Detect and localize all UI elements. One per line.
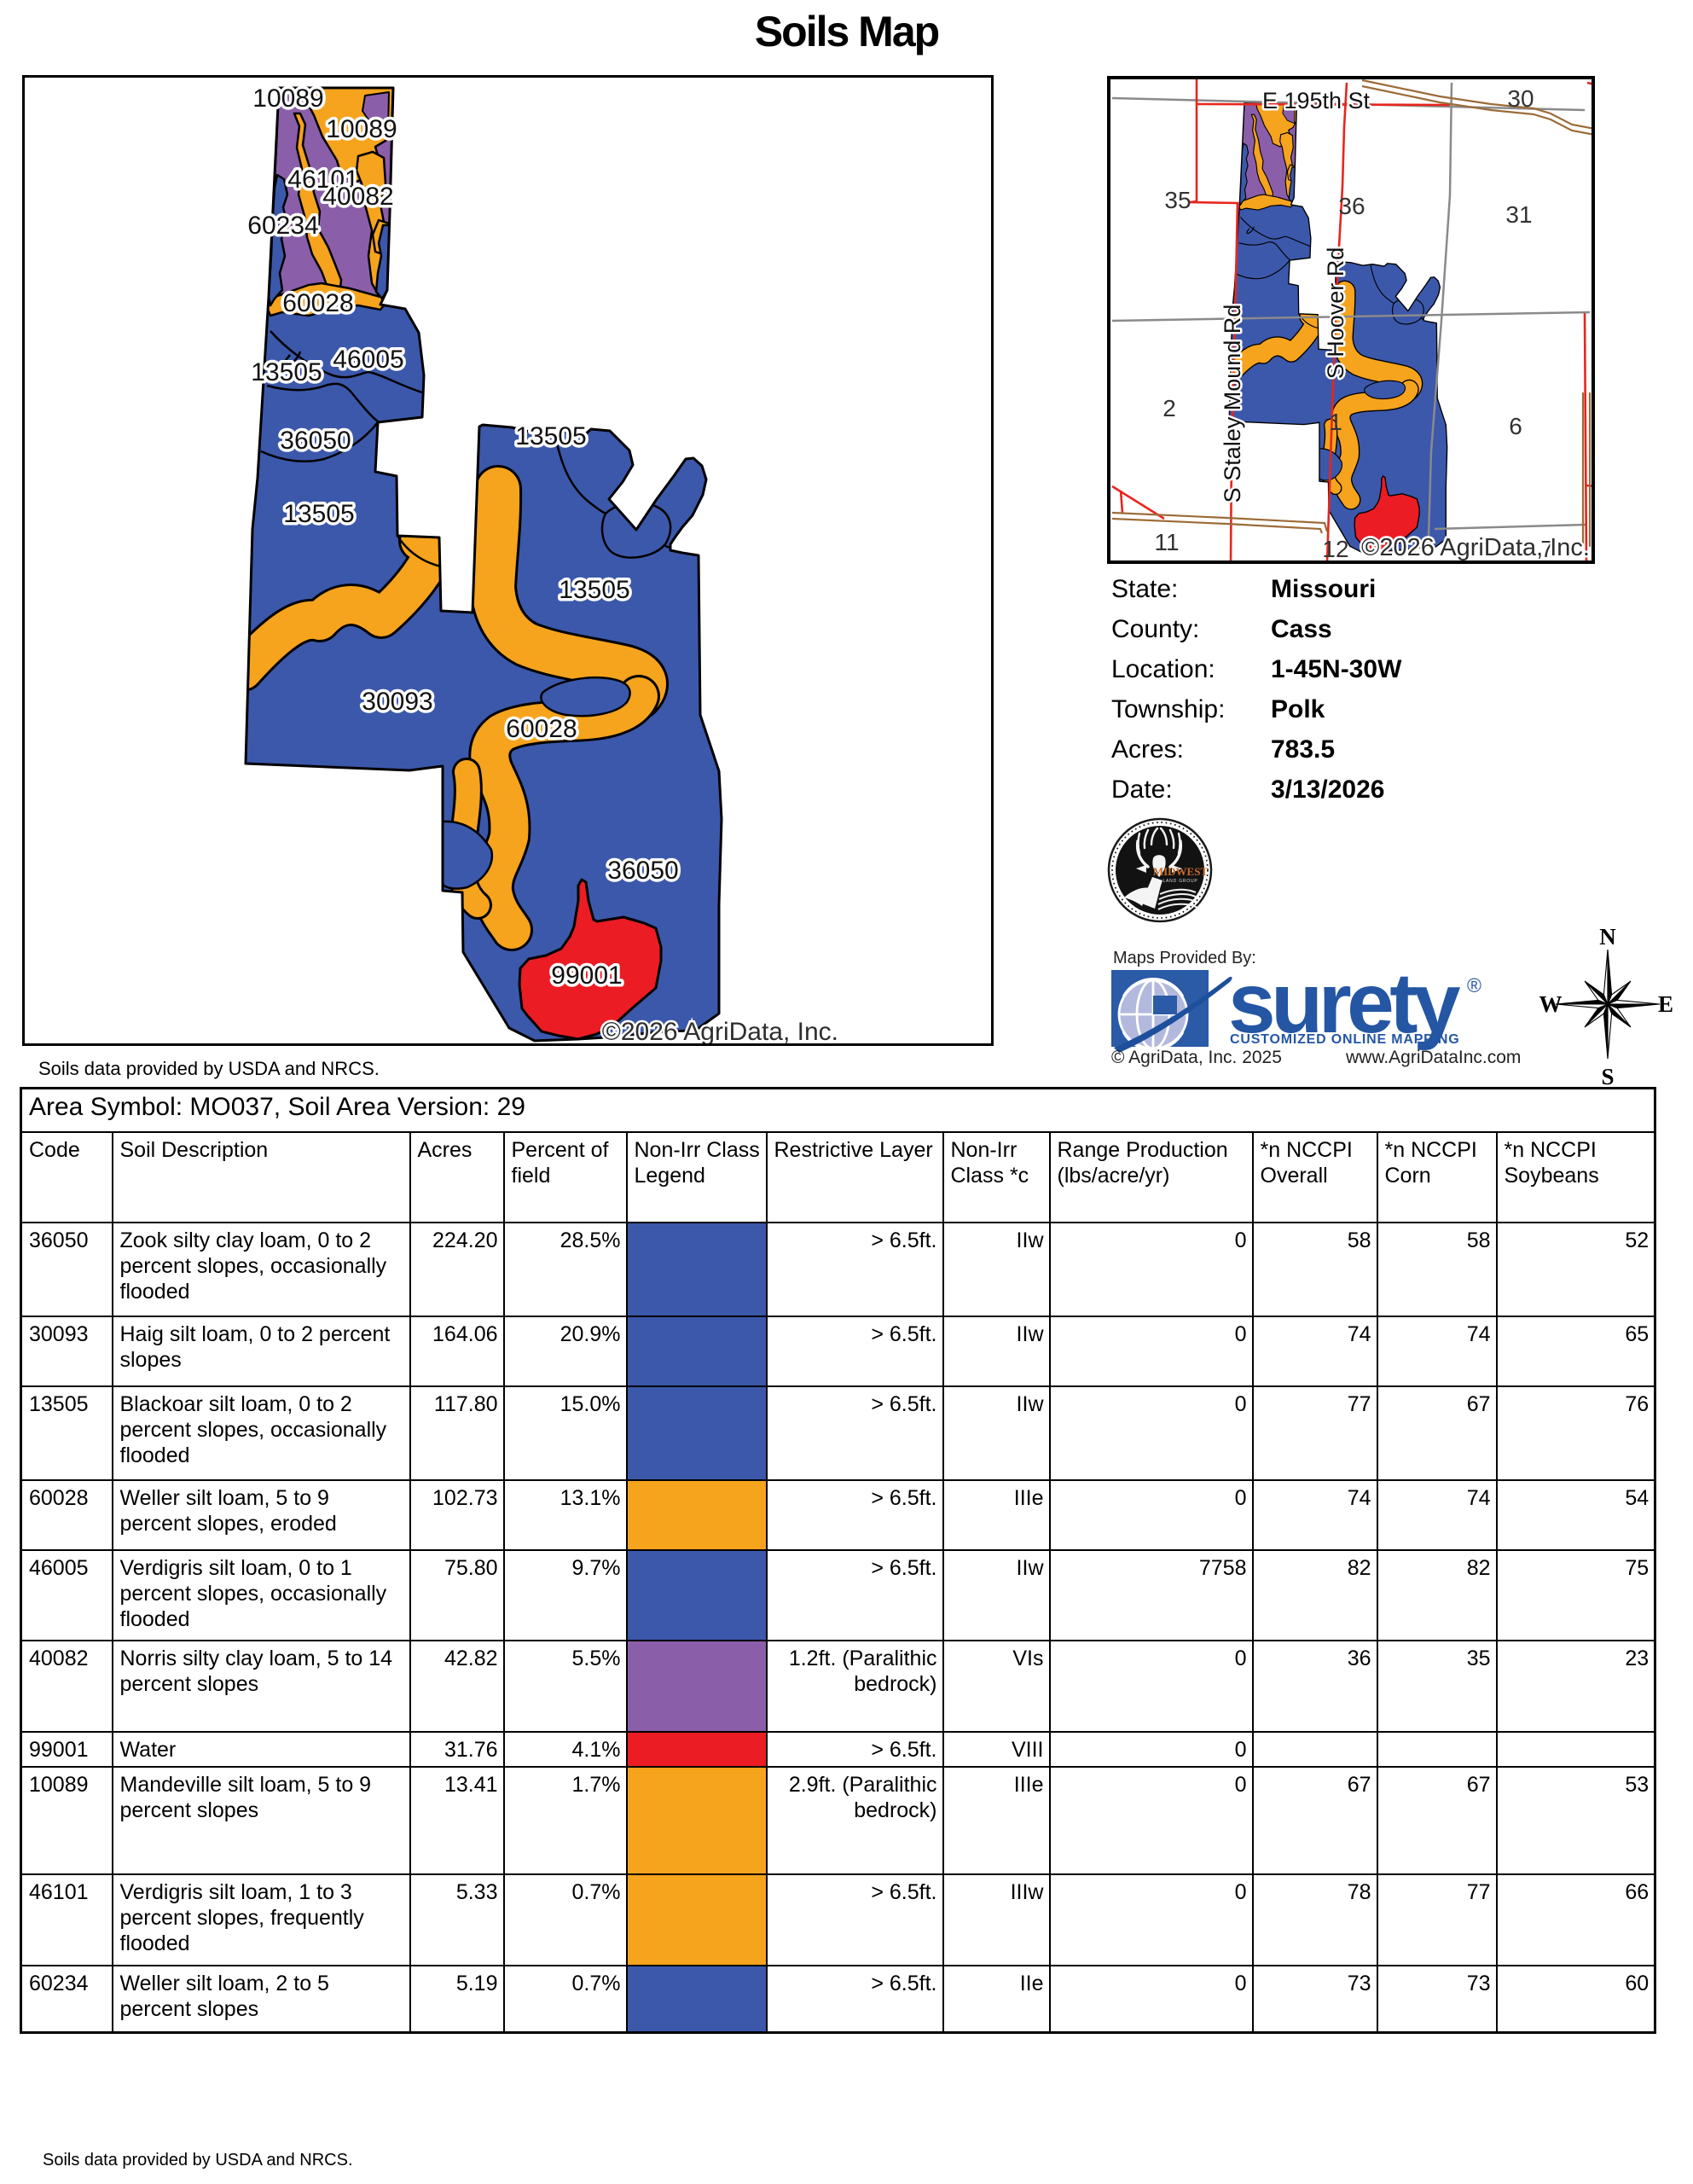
svg-text:31: 31 [1505,201,1532,228]
svg-text:6: 6 [1509,413,1522,439]
svg-text:S Staley Mound Rd: S Staley Mound Rd [1220,305,1245,503]
svg-text:E: E [1658,991,1673,1017]
svg-text:1: 1 [1329,409,1342,435]
svg-text:10089: 10089 [326,115,397,143]
svg-text:11: 11 [1154,529,1179,555]
svg-text:13505: 13505 [559,576,629,604]
svg-text:12: 12 [1322,536,1348,562]
svg-text:30: 30 [1507,85,1534,112]
svg-text:13505: 13505 [515,422,586,450]
svg-text:N: N [1599,926,1616,950]
svg-text:W: W [1539,991,1563,1017]
svg-text:35: 35 [1164,187,1191,213]
svg-text:46005: 46005 [333,346,403,374]
svg-text:E 195th St: E 195th St [1262,88,1371,113]
svg-text:36: 36 [1338,193,1365,219]
svg-text:40082: 40082 [322,183,393,211]
svg-text:36050: 36050 [280,427,351,455]
svg-text:60234: 60234 [247,212,318,240]
svg-text:2: 2 [1162,395,1176,421]
svg-text:©2026 AgriData, Inc.: ©2026 AgriData, Inc. [602,1018,838,1046]
svg-text:10089: 10089 [252,84,323,113]
svg-text:©2026 AgriData, Inc.: ©2026 AgriData, Inc. [1361,534,1590,561]
svg-text:13505: 13505 [283,500,354,528]
svg-text:36050: 36050 [607,857,678,885]
svg-text:60028: 60028 [506,715,577,743]
svg-text:S Hoover Rd: S Hoover Rd [1323,247,1348,380]
svg-text:S: S [1601,1064,1614,1088]
svg-text:MIDWEST: MIDWEST [1153,865,1209,878]
svg-text:30093: 30093 [362,688,432,716]
svg-text:13505: 13505 [251,358,322,386]
svg-text:99001: 99001 [551,961,622,990]
svg-text:®: ® [1467,974,1481,996]
svg-text:60028: 60028 [282,289,353,317]
svg-text:LAND GROUP: LAND GROUP [1162,879,1197,884]
svg-text:CUSTOMIZED ONLINE MAPPING: CUSTOMIZED ONLINE MAPPING [1230,1032,1460,1047]
